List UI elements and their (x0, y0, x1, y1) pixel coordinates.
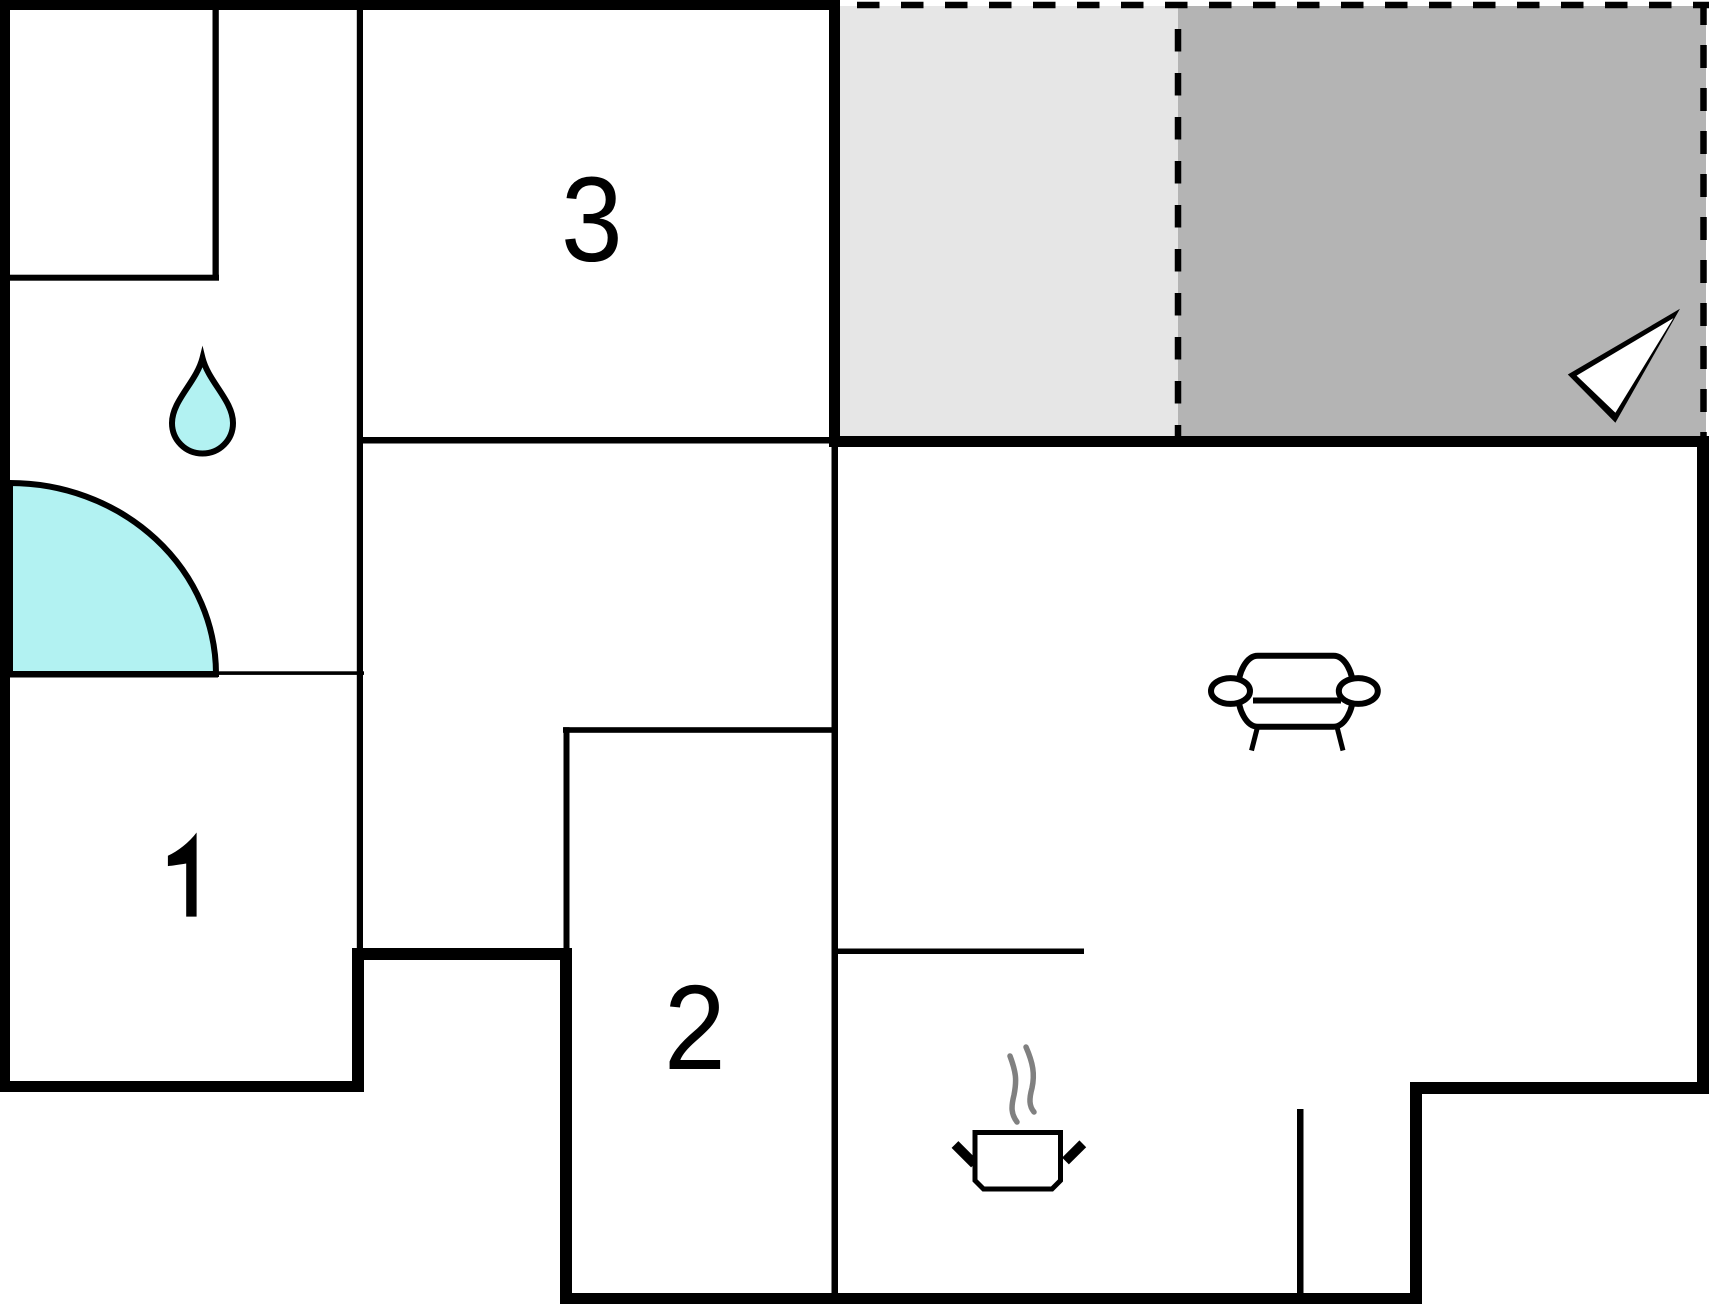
svg-text:2: 2 (664, 960, 726, 1095)
svg-text:3: 3 (561, 152, 623, 287)
